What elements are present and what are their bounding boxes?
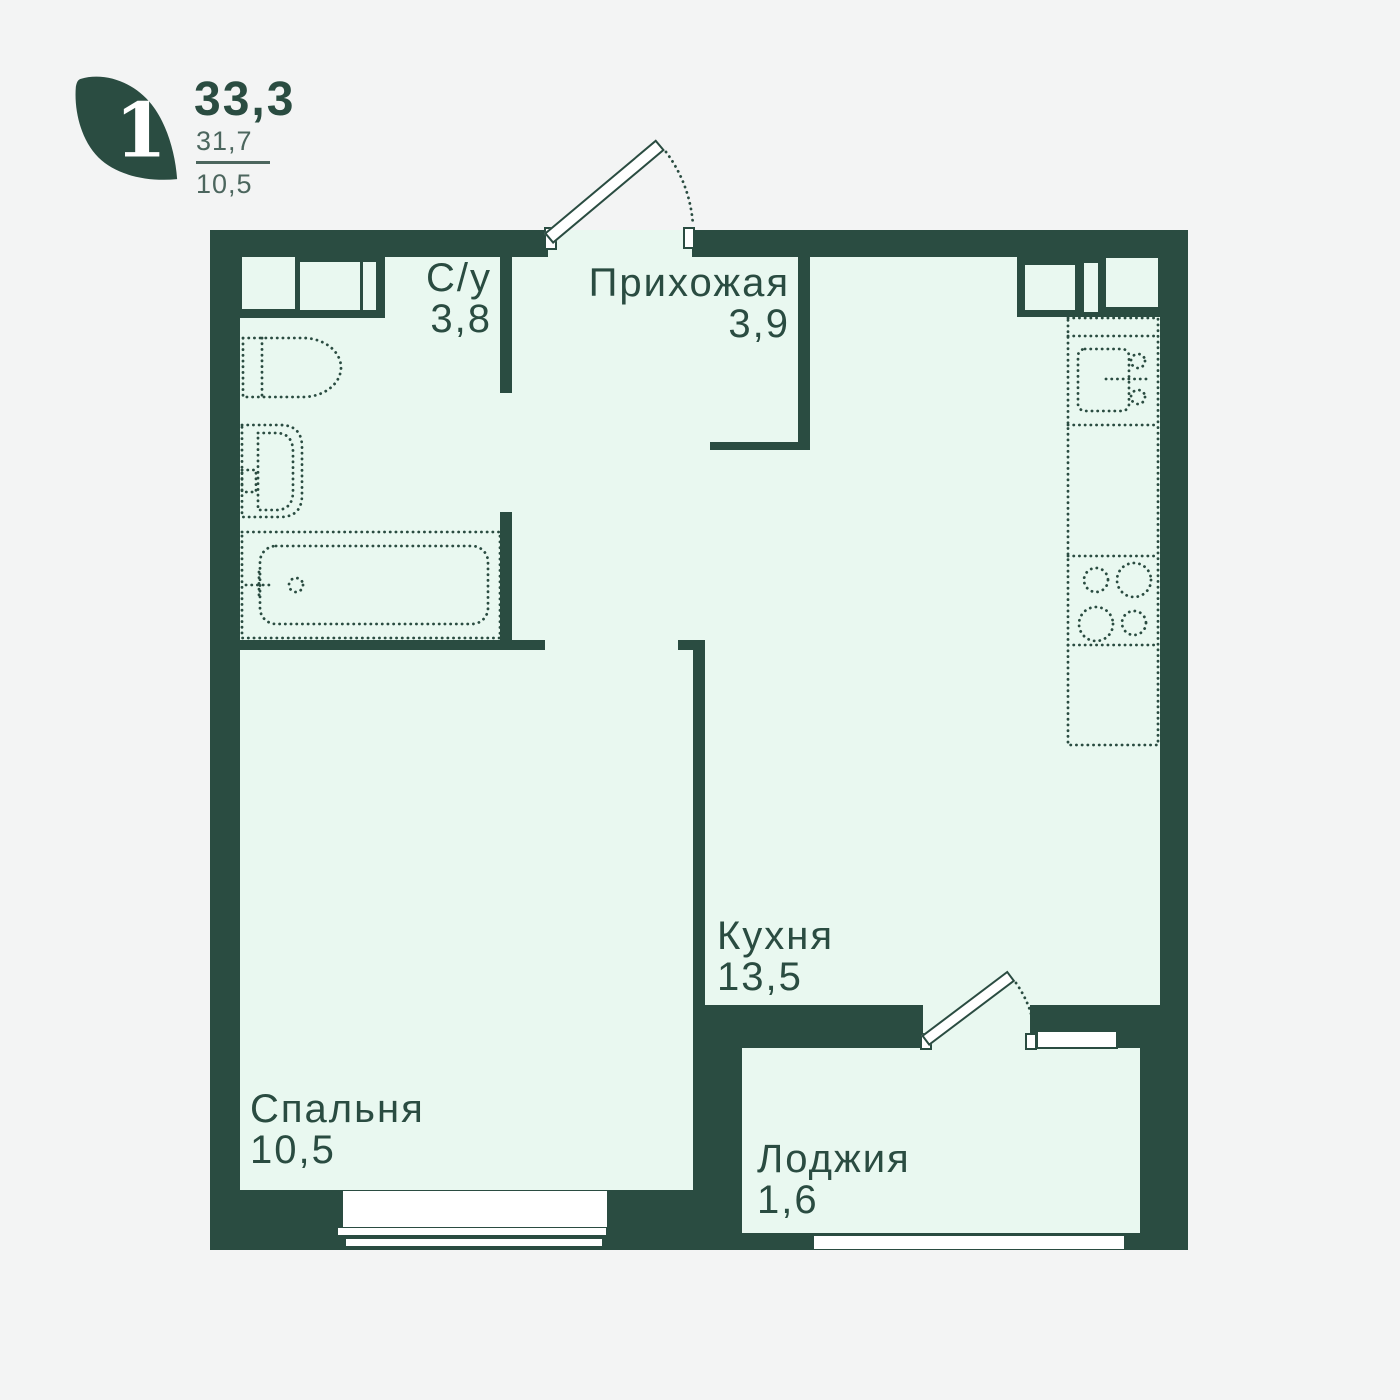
shaft-niche: [1025, 265, 1075, 310]
label-hallway: Прихожая 3,9: [589, 263, 790, 345]
label-bathroom: С/у 3,8: [426, 258, 492, 340]
bathroom-wall-lower: [500, 512, 512, 650]
room-area: 3,9: [589, 304, 790, 345]
loggia-left-wall: [693, 1005, 742, 1233]
room-area: 3,8: [426, 299, 492, 340]
room-name: С/у: [426, 256, 492, 300]
shaft-niche: [300, 262, 360, 310]
loggia-window: [813, 1235, 1125, 1250]
room-area: 1,6: [757, 1180, 911, 1221]
living-area: 31,7: [196, 126, 270, 164]
shaft-niche: [242, 257, 295, 309]
room-name: Лоджия: [757, 1137, 911, 1181]
bathroom-wall-upper: [500, 257, 512, 393]
bedroom-window-frame-outer: [337, 1227, 607, 1236]
shaft-niche: [1106, 258, 1158, 307]
balcony-window: [1036, 1030, 1118, 1049]
label-loggia: Лоджия 1,6: [757, 1139, 911, 1221]
entrance-door-swing: [666, 152, 693, 225]
hallway-wall: [798, 257, 810, 450]
leaf-logo: 1: [67, 69, 185, 187]
label-kitchen: Кухня 13,5: [717, 916, 834, 998]
bedroom-kitchen-wall: [693, 650, 705, 1005]
entrance-opening: [548, 230, 692, 257]
room-area: 13,5: [717, 957, 834, 998]
room-name: Прихожая: [589, 261, 790, 305]
label-bedroom: Спальня 10,5: [250, 1089, 425, 1171]
kitchen-loggia-wall-left: [742, 1005, 923, 1048]
bedroom-window-frame-inner: [345, 1238, 603, 1247]
entrance-door-icon: [544, 139, 665, 244]
kitchen-area: 10,5: [196, 169, 253, 200]
room-name: Кухня: [717, 914, 834, 958]
bedroom-door-stub: [678, 640, 705, 650]
hallway-wall-stub: [710, 442, 810, 450]
shaft-niche: [1084, 263, 1098, 312]
rooms-count-badge: 1: [115, 87, 167, 175]
room-area: 10,5: [250, 1130, 425, 1171]
shaft-niche: [363, 262, 376, 310]
total-area: 33,3: [194, 72, 295, 127]
room-name: Спальня: [250, 1087, 425, 1131]
bedroom-window-sill: [343, 1191, 607, 1227]
entrance-jamb-right: [683, 227, 695, 249]
bathroom-wall-bottom: [240, 640, 545, 650]
floorplan-canvas: 1 33,3 31,7 10,5: [0, 0, 1400, 1400]
